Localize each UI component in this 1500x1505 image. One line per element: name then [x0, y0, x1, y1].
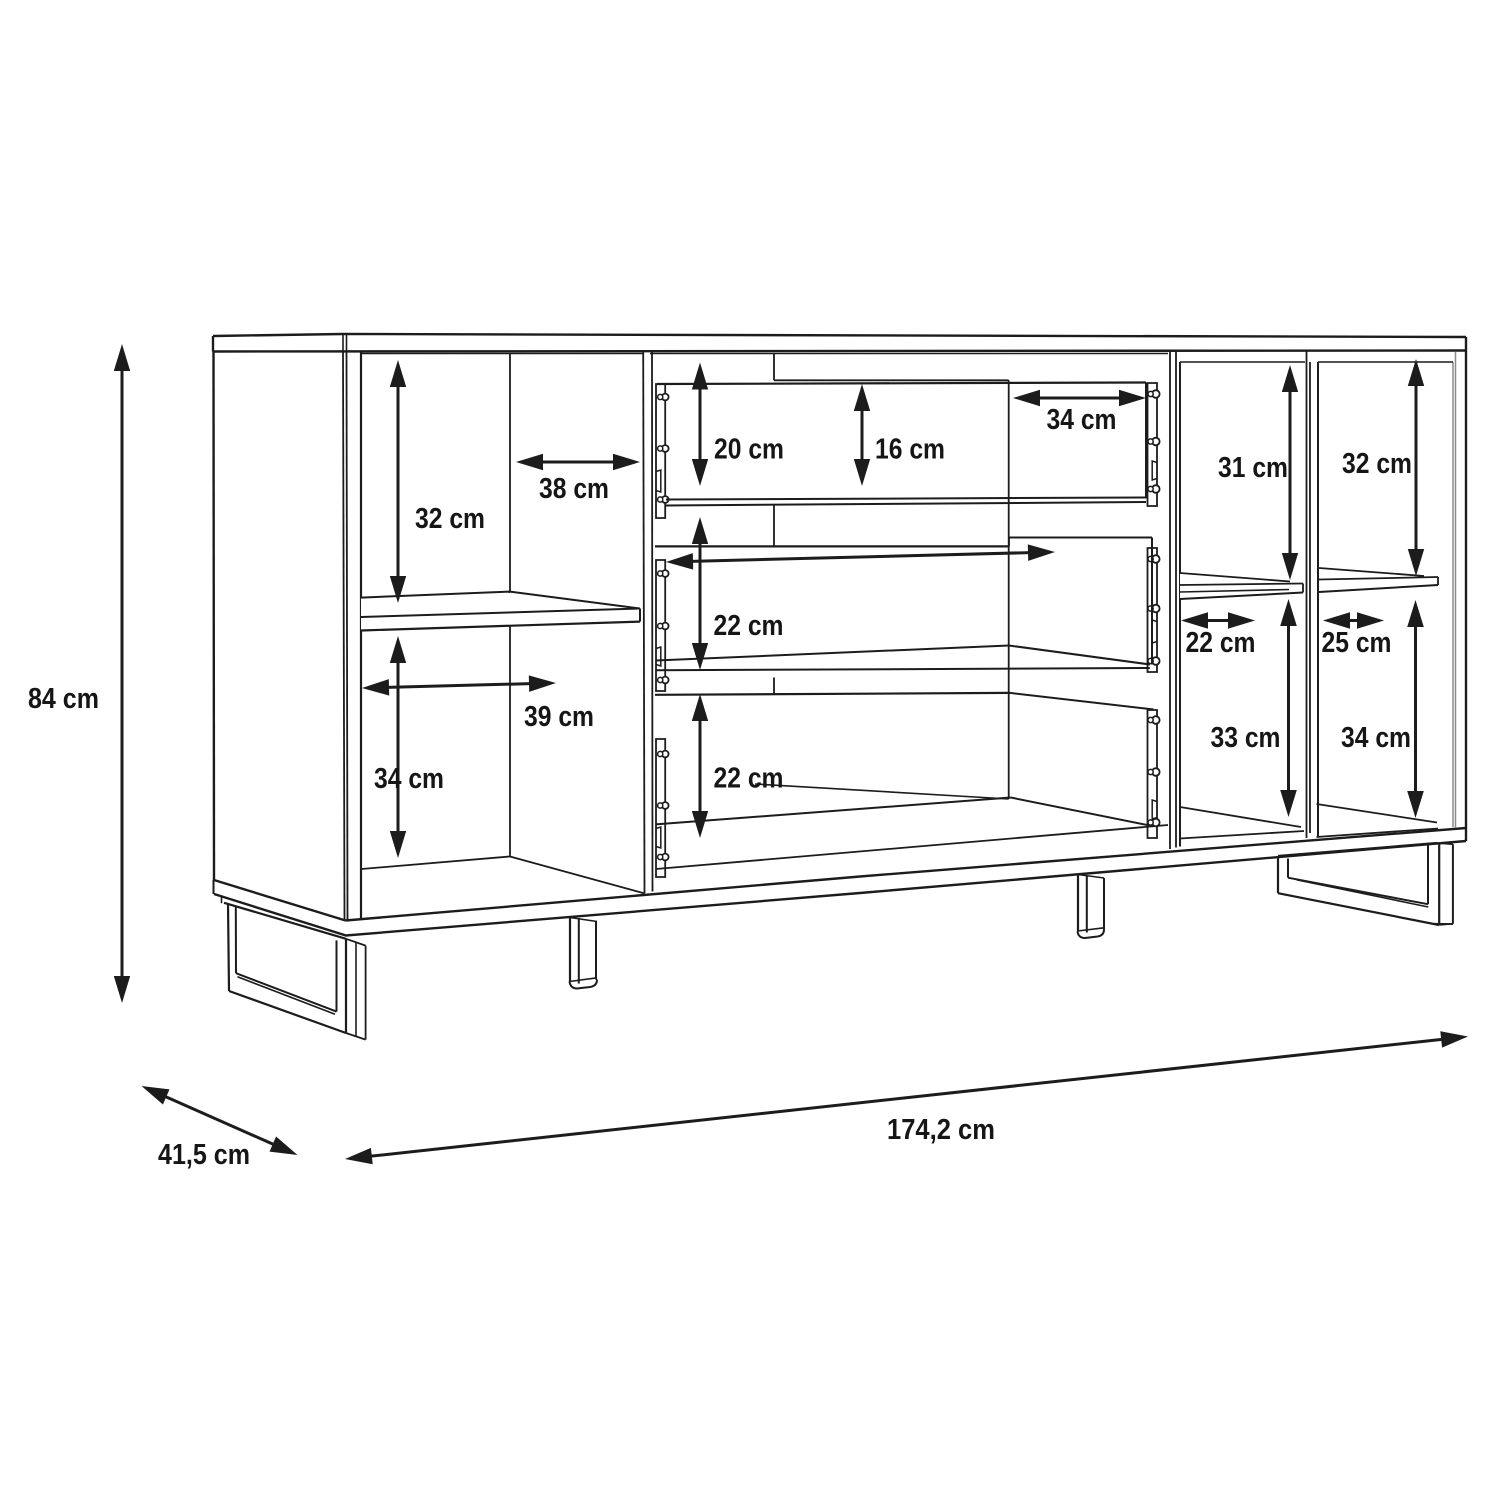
svg-text:33 cm: 33 cm	[1211, 722, 1281, 754]
svg-text:174,2 cm: 174,2 cm	[887, 1114, 995, 1146]
svg-text:84 cm: 84 cm	[28, 683, 99, 715]
svg-text:22 cm: 22 cm	[1186, 627, 1256, 659]
svg-text:32 cm: 32 cm	[1342, 448, 1412, 480]
svg-text:31 cm: 31 cm	[1218, 452, 1288, 484]
svg-text:32 cm: 32 cm	[415, 503, 485, 535]
svg-text:34 cm: 34 cm	[374, 763, 444, 795]
svg-text:22 cm: 22 cm	[714, 610, 784, 642]
svg-text:34 cm: 34 cm	[1341, 722, 1411, 754]
svg-text:38 cm: 38 cm	[539, 473, 609, 505]
svg-text:39 cm: 39 cm	[524, 701, 594, 733]
svg-text:16 cm: 16 cm	[875, 434, 945, 466]
svg-text:41,5 cm: 41,5 cm	[158, 1139, 250, 1171]
svg-text:22 cm: 22 cm	[714, 763, 784, 795]
svg-text:25 cm: 25 cm	[1322, 627, 1392, 659]
svg-text:20 cm: 20 cm	[714, 434, 784, 466]
svg-text:34 cm: 34 cm	[1047, 404, 1117, 436]
